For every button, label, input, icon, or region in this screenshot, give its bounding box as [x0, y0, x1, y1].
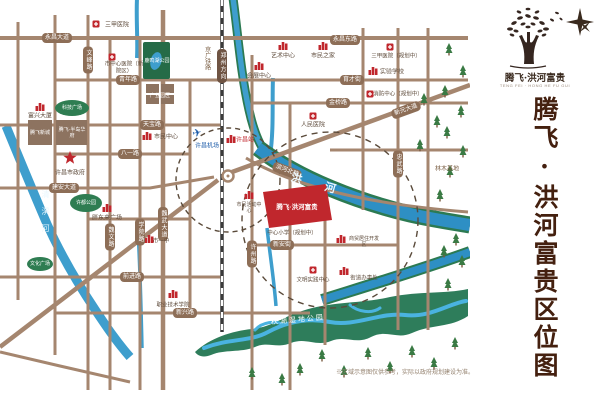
poi-huodong: 市民活动中心	[236, 202, 262, 214]
road-label-yongchang-donglu: 永昌东路	[330, 35, 360, 45]
road-label-jianan: 建安大道	[49, 183, 79, 193]
poi-shiyan-school: 实验学校	[380, 69, 404, 76]
road-label-wenfeng: 文峰路	[83, 47, 93, 74]
luminghu-park-label: 鹿鸣湖公园	[144, 58, 169, 64]
poi-tengfei-bandao: 腾飞·半岛华府	[58, 127, 86, 139]
poi-zhiyuan: 职业技术学院	[156, 303, 189, 310]
road-label-jinqiao: 金桥路	[326, 98, 350, 108]
poi-airport: 许昌机场	[195, 143, 219, 150]
road-label-qingnian: 青年路	[116, 75, 140, 85]
poi-xinyuan-hospital: 市中心医院（新院区）	[103, 61, 145, 74]
poi-government: 许昌市政府	[55, 170, 85, 177]
railway-name-label: 京广铁路	[202, 46, 209, 70]
roundabout	[223, 171, 234, 182]
poi-jiedao: 街道办事处	[350, 276, 378, 283]
poi-tengfei-xincheng: 腾飞新城	[30, 130, 50, 136]
railway-direction-label: 郑州方向	[217, 49, 227, 83]
brand-logo-tree	[470, 0, 600, 110]
poi-station: 许昌站	[236, 137, 254, 144]
road-label-xuzhou: 许州路	[247, 241, 257, 268]
road-label-xinan: 新安街	[270, 240, 294, 250]
poi-shimin-center: 市民中心	[154, 134, 178, 141]
qingyi-river-label: 清潩河	[40, 190, 51, 241]
poi-xiaofang: 消防中心（规划中）	[373, 92, 423, 99]
xudu-park-label: 许都公园	[76, 200, 96, 206]
poi-sanjia-top: 三甲医院	[105, 22, 129, 29]
poi-shangmao: 商贸居住开发区	[349, 236, 379, 248]
road-label-xinxing: 新兴路	[173, 308, 197, 318]
project-name-label: 腾飞·洪河富贵	[276, 201, 317, 211]
compass-icon	[566, 8, 595, 37]
poi-fuxing: 富兴大厦	[28, 113, 52, 120]
poi-wenming: 文明实践中心	[296, 278, 329, 285]
location-map-poster: 永昌大道 永昌东路 青年路 育才街 金桥路 天宝路 八一路 建安大道 新元大道 …	[0, 0, 600, 405]
road-label-bayi: 八一路	[118, 149, 142, 159]
map-graphics	[0, 0, 470, 405]
poi-pangdonglai: 胖东来广场	[92, 215, 122, 222]
road-label-zhongwu: 忠武路	[393, 151, 403, 178]
map-canvas: 永昌大道 永昌东路 青年路 育才街 金桥路 天宝路 八一路 建安大道 新元大道 …	[0, 0, 470, 405]
poi-renmin-hospital: 人民医院	[301, 122, 325, 129]
poi-sanjia-plan: 三甲医院（规划中）	[371, 54, 421, 61]
linmu-base-label: 林木基地	[435, 166, 459, 173]
poster-title-vertical: 腾飞·洪河富贵区位图	[532, 96, 557, 380]
brand-tagline: TENG FEI · HONG HE FU GUI	[500, 83, 570, 88]
road-label-xueyuan: 学院路	[135, 219, 145, 246]
poi-chanye: 产业园区	[150, 93, 170, 99]
poi-shimin-zhijia: 市民之家	[311, 53, 335, 60]
road-label-qianjin: 前进路	[120, 272, 144, 282]
poi-yizhong: 市一中	[153, 239, 170, 246]
road-label-tianbao: 天宝路	[140, 120, 164, 130]
road-label-yongchang-dadao: 永昌大道	[42, 33, 72, 43]
poi-yishu: 艺术中心	[271, 53, 295, 60]
road-label-weiwen: 魏文路	[105, 224, 115, 251]
poi-huizhan: 会展中心	[247, 73, 271, 80]
road-label-weiwu: 魏武大道	[158, 207, 168, 241]
keji-square-label: 科技广场	[62, 105, 82, 111]
poi-zhongxin-school: 中心小学（规划中）	[267, 231, 317, 238]
map-disclaimer: ※区域示意图仅供参考，实际以政府规划建设为准。	[336, 367, 526, 376]
wenhua-square-label: 文化广场	[30, 261, 50, 267]
title-sidebar: 腾飞·洪河富贵 TENG FEI · HONG HE FU GUI 腾飞·洪河富…	[470, 0, 600, 405]
brand-name: 腾飞·洪河富贵	[505, 70, 565, 84]
road-label-yucai: 育才街	[340, 75, 364, 85]
